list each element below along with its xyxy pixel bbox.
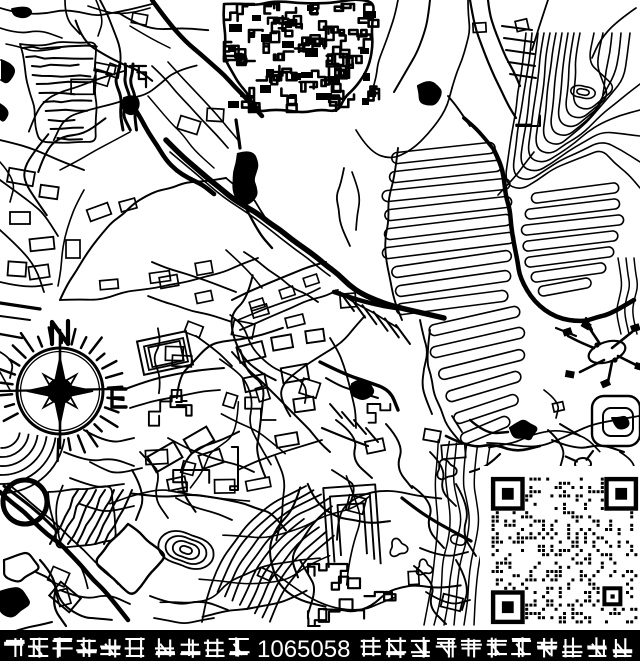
svg-text:1065058: 1065058 <box>257 636 350 661</box>
